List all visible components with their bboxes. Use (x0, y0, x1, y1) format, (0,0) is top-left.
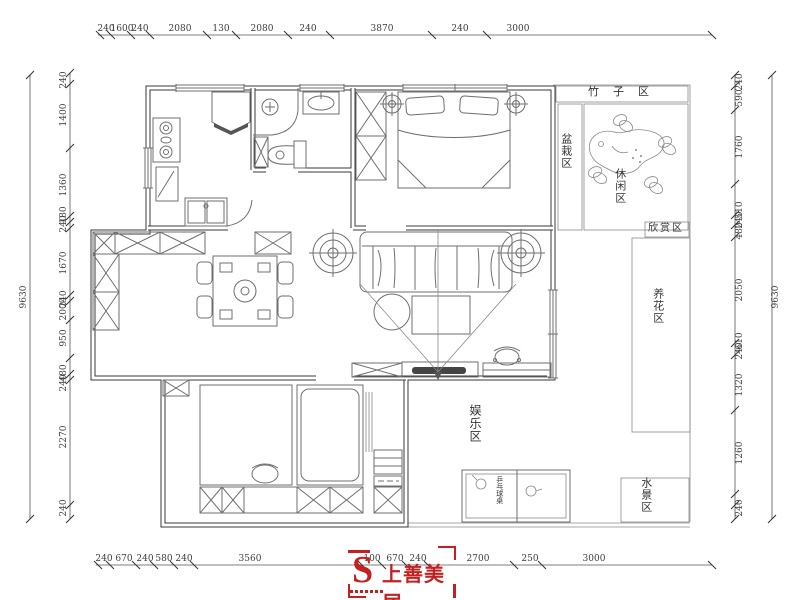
dim-right-5: 480 (735, 222, 745, 239)
dim-bottom-0: 240 (95, 554, 112, 564)
side-table (374, 294, 410, 330)
dim-top-1: 1600 (111, 24, 134, 34)
logo-monogram: S (352, 548, 373, 592)
dim-left-4: 240 (59, 215, 69, 232)
toilet (268, 141, 306, 168)
dining-chair (197, 296, 212, 318)
armchair (494, 347, 521, 365)
room-label-flower: 养花区 (650, 288, 664, 324)
bath-door-opening (266, 165, 298, 175)
dim-right-1: 590 (735, 89, 745, 106)
pingpong-table (462, 470, 570, 522)
dim-top-8: 240 (451, 24, 468, 34)
appliance-stack (374, 450, 402, 513)
floorplan-drawing: 240 1600 240 2080 130 2080 240 3870 240 … (0, 0, 800, 600)
shower-door-panel (254, 137, 268, 167)
dim-top-4: 130 (212, 24, 229, 34)
kitchen-furniture (153, 92, 252, 226)
double-bed (398, 92, 510, 188)
room-label-potted: 盆栽区 (558, 133, 572, 169)
single-bed (297, 385, 363, 485)
dim-left-0: 240 (59, 71, 69, 88)
shower-enclosure (253, 88, 298, 135)
dim-right-total: 9630 (771, 285, 781, 308)
water-feature-box (621, 478, 689, 522)
dim-top-7: 3870 (371, 24, 394, 34)
bedroom2-door-opening (316, 373, 354, 383)
room-label-water: 水景区 (638, 477, 652, 513)
dim-bottom-3: 580 (155, 554, 172, 564)
plant-pot (309, 229, 357, 277)
dim-right-6: 2050 (735, 278, 745, 301)
dining-chair (278, 296, 293, 318)
sideboard (93, 232, 205, 254)
dim-top-2: 240 (131, 24, 148, 34)
dim-right-10: 1260 (735, 441, 745, 464)
dim-right-8: 240 (735, 342, 745, 359)
pillar-box (163, 380, 189, 396)
dim-left-8: 950 (59, 329, 69, 346)
dim-top-6: 240 (299, 24, 316, 34)
floorplan-page: 240 1600 240 2080 130 2080 240 3870 240 … (0, 0, 800, 600)
room-label-bamboo: 竹子区 (588, 86, 678, 100)
dim-right-9: 1320 (735, 373, 745, 396)
logo-subtext-marks (350, 590, 384, 593)
dining-chair (278, 262, 293, 284)
dining-chair (197, 262, 212, 284)
bedroom2-furniture (163, 380, 402, 513)
dim-top-9: 3000 (507, 24, 530, 34)
plant-pot (497, 229, 545, 277)
hall-cabinet (255, 232, 291, 254)
walls (93, 88, 553, 525)
dimension-text-top: 240 1600 240 2080 130 2080 240 3870 240 … (97, 24, 529, 34)
dim-top-5: 2080 (251, 24, 274, 34)
tatami-platform (200, 385, 292, 485)
dim-left-5: 1670 (59, 251, 69, 274)
dim-left-2: 1360 (59, 173, 69, 196)
dim-right-11: 240 (735, 499, 745, 516)
kitchen-sink (185, 198, 227, 226)
dim-left-total: 9630 (19, 285, 29, 308)
pillow (405, 96, 444, 116)
dim-bottom-10: 250 (521, 554, 538, 564)
wardrobe (356, 92, 386, 180)
dim-right-0: 240 (735, 73, 745, 90)
dim-top-3: 2080 (169, 24, 192, 34)
dim-bottom-2: 240 (136, 554, 153, 564)
plant-leaf-icons (587, 113, 678, 196)
tv-wall (352, 362, 551, 377)
desk-chair (252, 464, 278, 483)
coffee-table (412, 296, 470, 334)
bathroom-furniture (253, 88, 339, 168)
pond (589, 130, 664, 174)
curtain-track (366, 392, 372, 452)
cutting-board (156, 167, 178, 201)
counter-curve (227, 200, 252, 226)
room-label-entertainment: 娱乐区 (467, 404, 482, 443)
kitchen-window (142, 148, 154, 188)
flower-strip (632, 238, 690, 432)
dim-left-7: 2000 (59, 297, 69, 320)
balcony-door (547, 290, 559, 378)
dim-bottom-5: 3560 (239, 554, 262, 564)
desk-row (200, 487, 363, 513)
room-label-viewing: 欣赏区 (648, 223, 684, 236)
dim-left-11: 2270 (59, 425, 69, 448)
dim-bottom-11: 3000 (583, 554, 606, 564)
dimension-text-left: 240 1400 1360 180 240 1670 240 2000 950 … (19, 71, 69, 516)
room-label-leisure: 休闲区 (612, 168, 626, 204)
sofa (360, 232, 512, 292)
room-label-pingpong: 乒乓球桌 (494, 476, 503, 504)
storage-bench (93, 254, 119, 330)
dining-table (213, 256, 277, 326)
dim-left-12: 240 (59, 499, 69, 516)
logo-brand-text: 上善美居 (382, 558, 456, 600)
dim-bottom-1: 670 (115, 554, 132, 564)
desk (244, 487, 297, 513)
dim-bottom-4: 240 (175, 554, 192, 564)
dim-right-2: 1760 (735, 135, 745, 158)
brand-logo: S 上善美居 (338, 546, 456, 598)
living-room-furniture (309, 229, 551, 380)
dim-bottom-9: 2700 (467, 554, 490, 564)
dimension-text-right: 240 590 1760 510 240 480 2050 610 240 13… (735, 73, 781, 516)
paddle-icon (476, 479, 486, 489)
bedroom1-furniture (356, 92, 528, 188)
dining-furniture (93, 232, 293, 330)
pond-stones (632, 149, 642, 163)
pillow (459, 96, 498, 116)
stove (153, 118, 180, 162)
dim-left-10: 240 (59, 374, 69, 391)
dim-left-1: 1400 (59, 103, 69, 126)
paddle-icon (526, 486, 536, 496)
bedside-table (504, 92, 528, 116)
